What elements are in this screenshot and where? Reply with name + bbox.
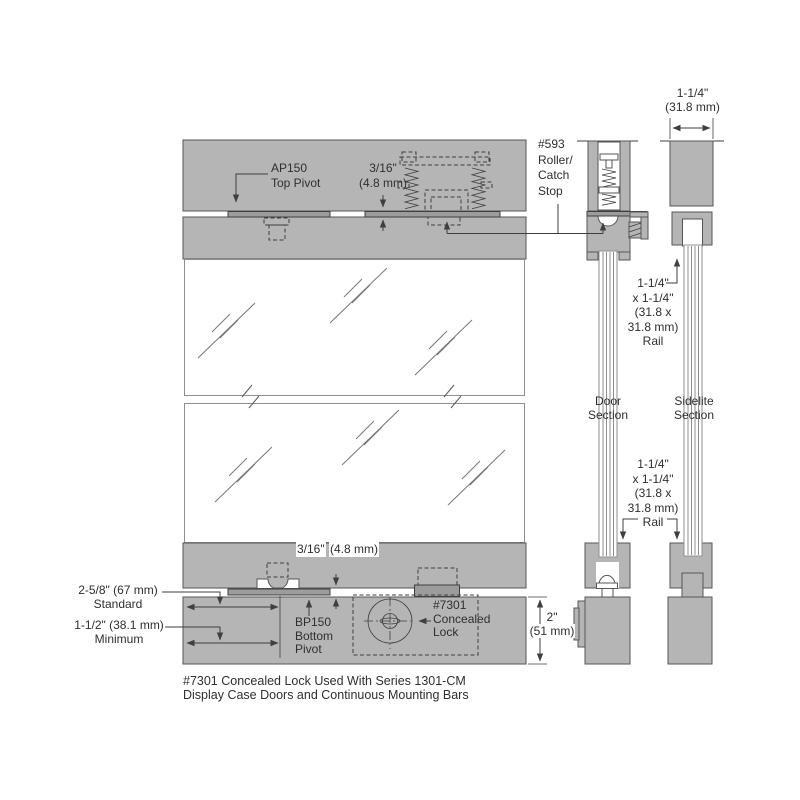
glass-gap-top-label: 3/16" (4.8 mm) <box>343 161 423 191</box>
base-height-dim-label: 2" (51 mm) <box>524 611 580 638</box>
rail-size-lower-label: 1-1/4" x 1-1/4" (31.8 x 31.8 mm) Rail <box>611 457 695 530</box>
glass-panel-lower <box>185 404 525 543</box>
technical-drawing-page: AP150 Top Pivot 3/16" (4.8 mm) #593 Roll… <box>0 0 800 800</box>
bottom-pivot-plate <box>228 589 330 595</box>
bp150-bottom-pivot-label: BP150 Bottom Pivot <box>295 616 333 657</box>
door-section-label: Door Section <box>582 394 634 422</box>
caption: #7301 Concealed Lock Used With Series 13… <box>183 674 469 702</box>
rail-size-upper-label: 1-1/4" x 1-1/4" (31.8 x 31.8 mm) Rail <box>611 276 695 349</box>
top-pivot-plate <box>228 212 330 218</box>
glass-gap-bottom-label: 3/16" (4.8 mm) <box>296 542 376 557</box>
front-elevation <box>183 140 526 664</box>
bottom-pivot-pin <box>596 562 619 597</box>
concealed-lock-label: #7301 Concealed Lock <box>433 599 490 640</box>
glass-panel-upper <box>185 260 525 396</box>
ap150-top-pivot-label: AP150 Top Pivot <box>271 161 320 191</box>
standard-height-label: 2-5/8" (67 mm) Standard <box>68 583 168 611</box>
sidelite-section-base <box>668 597 712 664</box>
sidelite-section-label: Sidelite Section <box>666 394 722 422</box>
header-width-dim-label: 1-1/4" (31.8 mm) <box>650 86 735 114</box>
sidelite-bottom-clamp <box>682 573 703 597</box>
sidelite-section-header <box>670 141 713 206</box>
catch-stop-plate <box>365 212 500 218</box>
roller-catch-stop-label: #593 Roller/ Catch Stop <box>538 137 573 199</box>
door-section-base <box>585 597 630 664</box>
minimum-height-label: 1-1/2" (38.1 mm) Minimum <box>64 618 174 646</box>
door-top-rail <box>183 217 526 259</box>
